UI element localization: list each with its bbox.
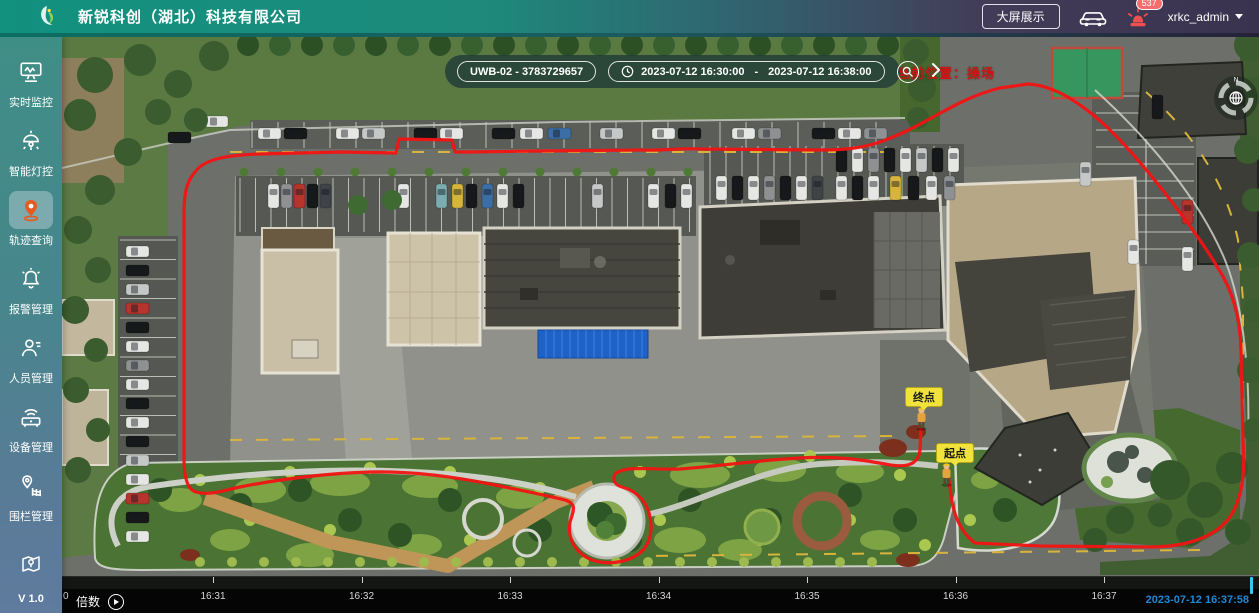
alarm-bell-icon (18, 266, 44, 292)
car-icon (1078, 7, 1108, 27)
timeline-tick-label: 16:36 (943, 591, 968, 602)
playback-current-time: 2023-07-12 16:37:58 (1146, 594, 1249, 606)
end-point-marker-label: 终点 (905, 387, 943, 407)
clock-icon (621, 65, 634, 78)
timeline-tick-label: 16:33 (497, 591, 522, 602)
sidebar-item-realtime-monitor[interactable]: 实时监控 (0, 53, 62, 122)
user-menu[interactable]: xrkc_admin (1168, 10, 1243, 24)
username: xrkc_admin (1168, 10, 1229, 24)
chevron-down-icon (1235, 14, 1243, 19)
alarm-count-badge: 537 (1136, 0, 1163, 10)
version-label: V 1.0 (18, 593, 44, 605)
play-icon (114, 599, 119, 605)
timeline-tick-label: 16:35 (794, 591, 819, 602)
sidebar-item-alarm-management[interactable]: 报警管理 (0, 260, 62, 329)
search-button[interactable] (897, 61, 919, 83)
time-start-value: 2023-07-12 16:30:00 (641, 66, 744, 78)
play-button[interactable] (108, 594, 124, 610)
timeline-tick (659, 577, 660, 583)
trajectory-search-bar: UWB-02 - 3783729657 2023-07-12 16:30:00 … (445, 55, 900, 88)
timeline-playhead[interactable] (1250, 577, 1253, 594)
page-title: 新锐科创（湖北）科技有限公司 (78, 6, 302, 27)
start-point-marker-label: 起点 (936, 443, 974, 463)
timeline-partial-label: 0 (63, 591, 69, 602)
smart-light-icon (18, 128, 44, 154)
header-actions: 大屏展示 537 xrkc_admin (982, 4, 1259, 29)
person-icon (18, 335, 44, 361)
fence-pin-icon (18, 473, 44, 499)
vehicle-button[interactable] (1078, 7, 1108, 27)
speed-label: 倍数 (76, 593, 100, 610)
sidebar-footer: V 1.0 (9, 545, 53, 613)
aerial-scene (62, 37, 1259, 613)
planter-circle (797, 496, 847, 546)
search-icon (901, 65, 914, 78)
time-end-value: 2023-07-12 16:38:00 (768, 66, 871, 78)
app-screen: 新锐科创（湖北）科技有限公司 大屏展示 537 x (0, 0, 1259, 613)
chevron-right-icon (931, 62, 941, 78)
sidebar-item-device-management[interactable]: 设备管理 (0, 398, 62, 467)
sidebar-item-personnel-management[interactable]: 人员管理 (0, 329, 62, 398)
sidebar-item-fence-management[interactable]: 围栏管理 (0, 467, 62, 536)
timeline-tick (956, 577, 957, 583)
device-icon (18, 404, 44, 430)
playback-bar: 0 16:3116:3216:3316:3416:3516:3616:37 倍数… (62, 576, 1259, 613)
time-range-picker[interactable]: 2023-07-12 16:30:00 - 2023-07-12 16:38:0… (608, 61, 884, 82)
timeline-tick-label: 16:32 (349, 591, 374, 602)
sidebar-item-smart-light[interactable]: 智能灯控 (0, 122, 62, 191)
collapse-arrow-button[interactable] (931, 62, 941, 82)
timeline-tick (510, 577, 511, 583)
header-divider (0, 33, 1259, 37)
timeline-tick-label: 16:31 (200, 591, 225, 602)
timeline-tick (807, 577, 808, 583)
timeline-tick-label: 16:37 (1091, 591, 1116, 602)
timeline-tick (213, 577, 214, 583)
device-select-value: UWB-02 - 3783729657 (470, 66, 583, 78)
company-logo-icon (34, 4, 60, 30)
aerial-map[interactable]: UWB-02 - 3783729657 2023-07-12 16:30:00 … (62, 37, 1259, 613)
trajectory-pin-icon (18, 197, 44, 223)
building-b (388, 233, 480, 345)
sidebar-item-trajectory-query[interactable]: 轨迹查询 (0, 191, 62, 260)
time-separator: - (754, 66, 758, 78)
timeline-ruler[interactable] (62, 576, 1259, 589)
compass-control[interactable]: N (1213, 75, 1259, 121)
timeline-tick (1104, 577, 1105, 583)
alarm-center-button[interactable]: 537 (1126, 6, 1150, 28)
timeline-tick-label: 16:34 (646, 591, 671, 602)
globe-icon (1230, 92, 1242, 104)
map-book-button[interactable] (9, 545, 53, 583)
timeline-tick (362, 577, 363, 583)
device-select[interactable]: UWB-02 - 3783729657 (457, 61, 596, 82)
compass-north-label: N (1234, 77, 1239, 84)
sidebar-nav: 实时监控 智能灯控 轨迹查询 报警管理 (0, 37, 62, 613)
app-header: 新锐科创（湖北）科技有限公司 大屏展示 537 x (0, 0, 1259, 33)
big-screen-button[interactable]: 大屏展示 (982, 4, 1060, 29)
monitor-icon (18, 59, 44, 85)
map-book-icon (19, 552, 43, 576)
playback-speed: 倍数 (76, 593, 124, 610)
